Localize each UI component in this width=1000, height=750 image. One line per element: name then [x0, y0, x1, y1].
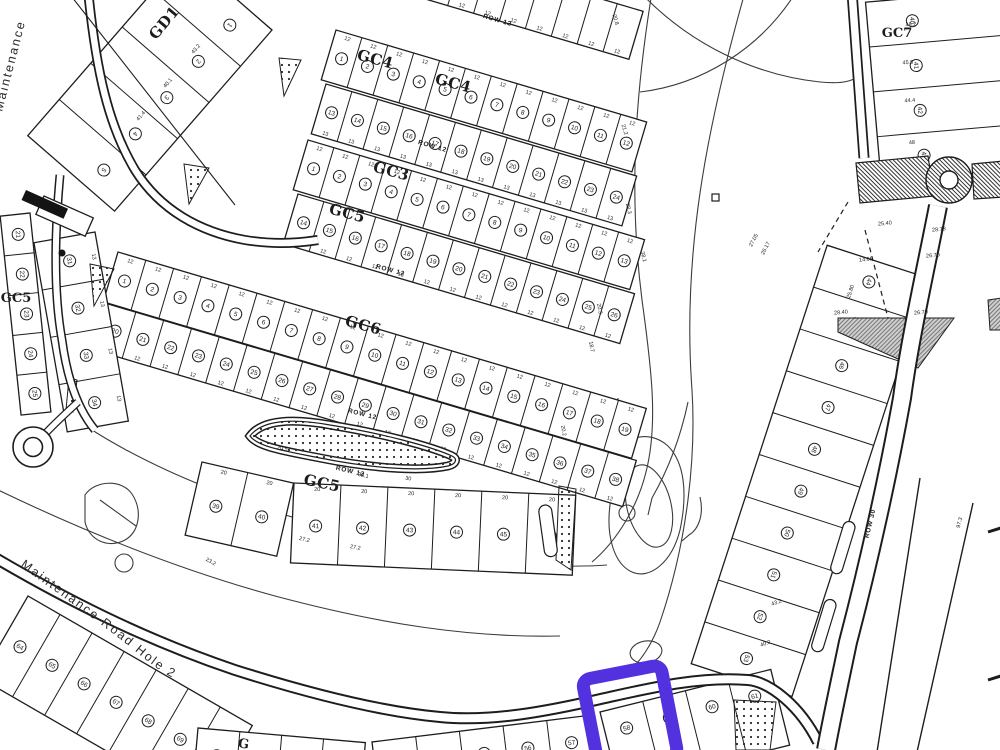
lot-row-row-bottom-strip-a: 49505152 — [192, 728, 365, 750]
stipple-wedge-gc4 — [279, 58, 301, 96]
dimension-label: 26.70 — [926, 252, 940, 259]
lot-row-row-gc5-bottom-a: 39204020 — [185, 462, 293, 556]
dimension-label: 26.70 — [914, 309, 928, 316]
dimension-label: 25.40 — [878, 220, 892, 227]
fairway-contour-8 — [648, 402, 688, 515]
dimension-label: 30 — [405, 476, 412, 483]
parcel-line-far-right-2 — [917, 503, 973, 750]
dimension-label: 45.6 — [902, 60, 913, 67]
cul-de-sac-left-inner — [24, 438, 43, 457]
dimension-label: 26.17 — [760, 241, 772, 256]
grayhatch-edge-right — [988, 298, 1000, 330]
lot-number: 23 — [22, 310, 30, 318]
stipple-wedge-bottom-right — [734, 700, 776, 750]
pond-outline — [85, 483, 138, 543]
lot-dimension: 20 — [502, 495, 508, 501]
lot-number: 22 — [18, 270, 26, 278]
edge-tick-1 — [988, 527, 1000, 532]
section-label-gc5: GC5 — [1, 291, 32, 306]
lot-number: 45 — [500, 531, 508, 538]
lot-number: 43 — [406, 527, 414, 534]
dimension-label: 97.3 — [956, 517, 964, 529]
lot-dimension: 13 — [106, 348, 113, 355]
cul-de-sac-right-inner — [940, 171, 958, 189]
lot-number: 57 — [568, 739, 576, 747]
road-name-maintenance-corner: Maintenance — [0, 19, 28, 113]
lot-row-row-bottom-left: 64656667686970 — [0, 596, 252, 750]
lot-dimension: 20 — [549, 497, 555, 503]
dimension-label: 33.1 — [357, 472, 369, 480]
dashed-boundary-culdesac — [818, 202, 848, 252]
lot-number: 21 — [14, 230, 22, 238]
lot-number: 42 — [359, 525, 367, 532]
dimension-label: 28.78 — [932, 226, 946, 233]
fairway-marker-square — [712, 194, 719, 201]
section-label-gc7: GC7 — [882, 26, 913, 41]
point-marker — [59, 250, 66, 257]
small-green-circle — [115, 554, 133, 572]
dimension-label: 48.2 — [905, 22, 916, 29]
plat-map: 1212121212121212112212312412512612712812… — [0, 0, 1000, 750]
dimension-label: 44.4 — [904, 98, 915, 105]
lot-dimension: 13 — [90, 253, 97, 260]
row-bottom-strip-a-band — [192, 728, 365, 750]
lot-number: 24 — [26, 350, 34, 358]
dimension-label: 28.40 — [834, 309, 848, 316]
dimension-label: 38.1 — [639, 251, 647, 263]
lot-number: 42 — [916, 107, 924, 115]
dimension-label: 14.05 — [859, 256, 873, 263]
lot-number: 41 — [312, 523, 320, 530]
section-label-g: G — [237, 736, 250, 750]
dimension-label: 18.7 — [587, 341, 595, 353]
lot-dimension: 13 — [115, 395, 122, 402]
lot-row-row-top-cut: 1212121212121212 — [422, 0, 643, 59]
pond-inner-line — [100, 500, 136, 526]
lot-number: 25 — [30, 390, 38, 398]
fairway-contour-4 — [640, 0, 858, 83]
lot-row-row-gc5-bottom-b: 412042204320442045204620 — [291, 483, 576, 575]
lot-number: 44 — [453, 529, 461, 536]
lot-dimension: 20 — [408, 491, 414, 497]
stipple-wedge-gc3 — [184, 164, 209, 204]
dimension-label: 48 — [909, 140, 916, 146]
lot-dimension: 20 — [455, 493, 461, 499]
dimension-label: 23.2 — [204, 557, 216, 568]
dimension-label: 27.05 — [748, 233, 760, 248]
lot-dimension: 13 — [98, 300, 105, 307]
row-bottom-left-band — [0, 596, 252, 750]
edge-tick-2 — [988, 675, 1000, 680]
lot-dimension: 20 — [361, 489, 367, 495]
road-top-right — [852, 0, 864, 158]
crosshatch-road-band — [856, 156, 934, 203]
lot-number: 56 — [524, 745, 532, 750]
plat-map-viewport: 1212121212121212112212312412512612712812… — [0, 0, 1000, 750]
crosshatch-road-stub — [972, 161, 1000, 199]
